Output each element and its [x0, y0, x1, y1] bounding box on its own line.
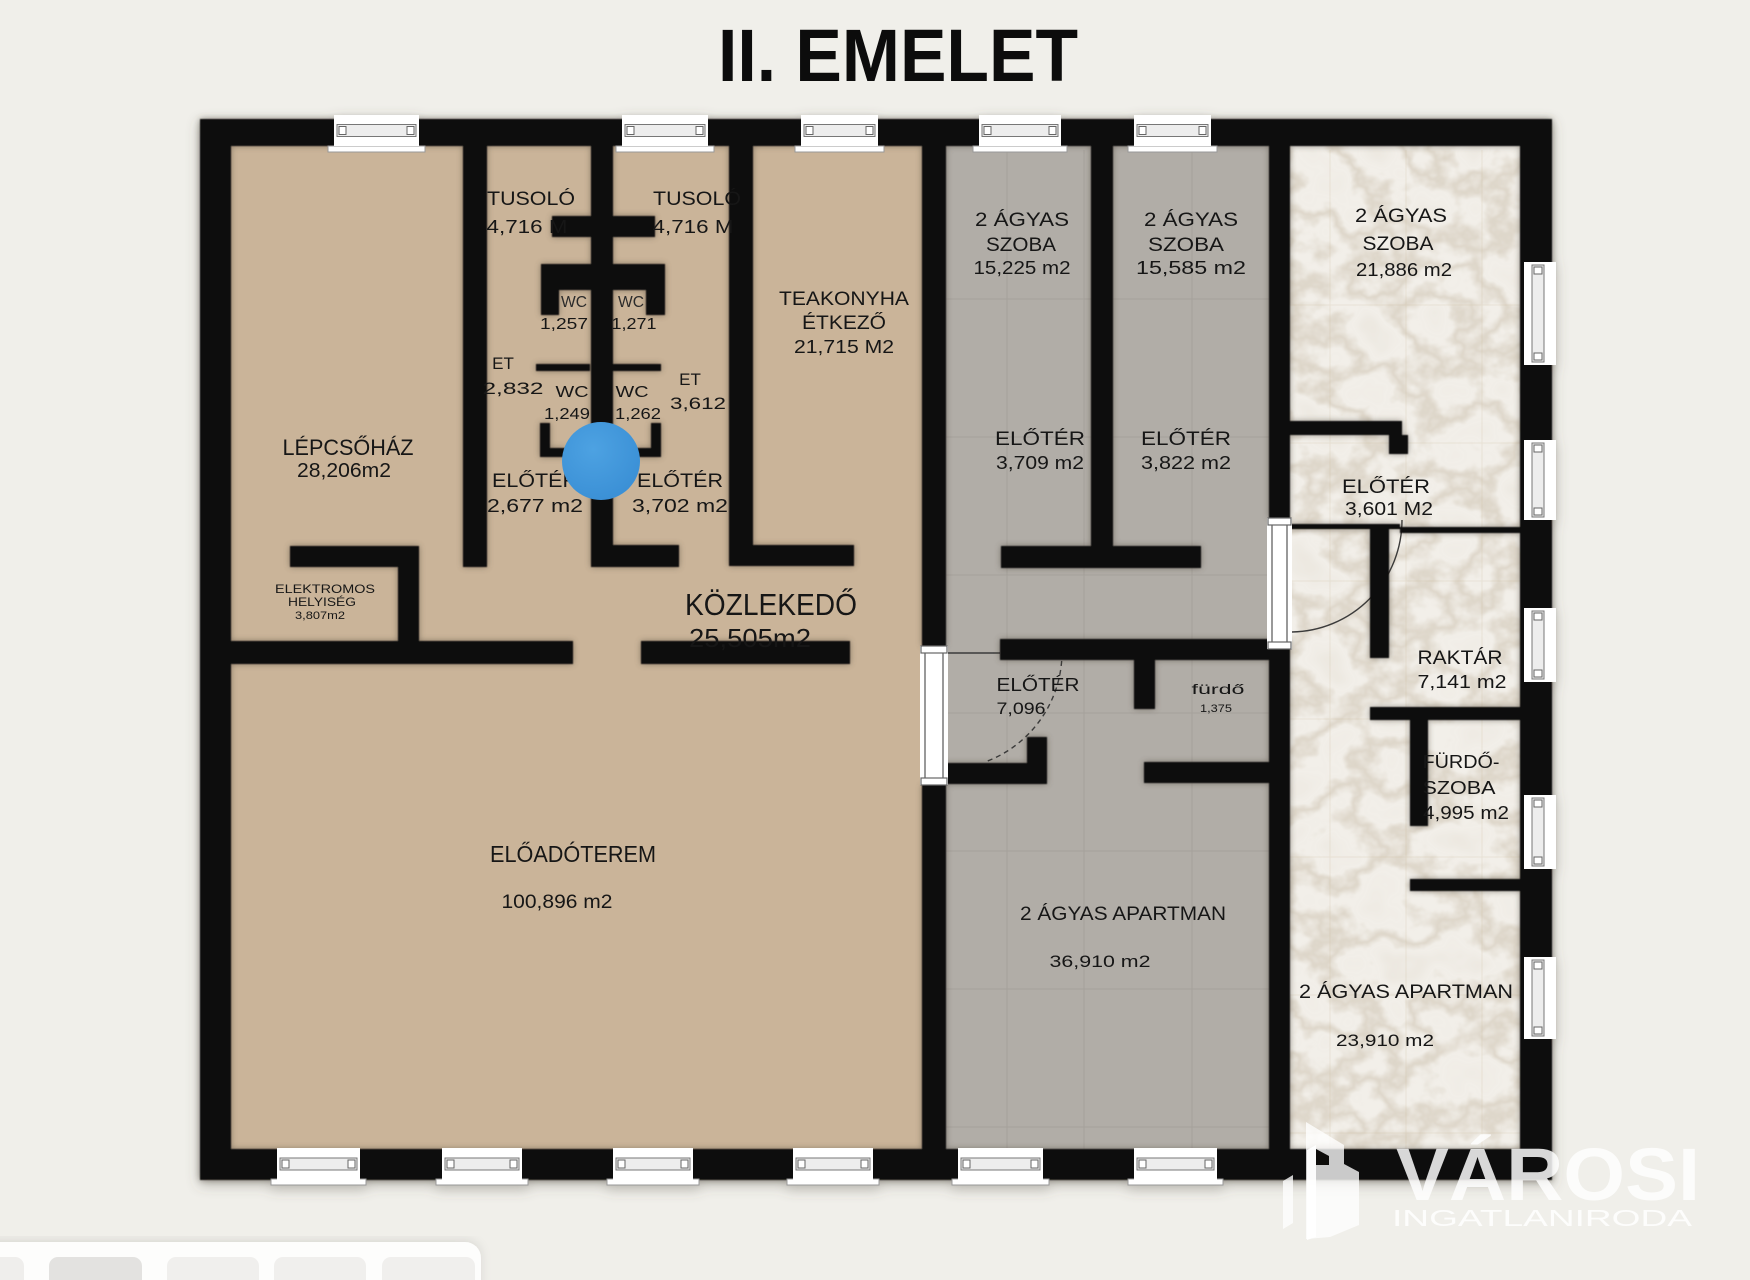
svg-text:2,832: 2,832 [483, 379, 544, 398]
svg-text:3,601 M2: 3,601 M2 [1345, 499, 1433, 519]
svg-text:II. EMELET: II. EMELET [718, 14, 1078, 97]
svg-text:2 ÁGYAS: 2 ÁGYAS [975, 210, 1069, 231]
svg-text:KÖZLEKEDŐ: KÖZLEKEDŐ [685, 587, 857, 622]
svg-text:SZOBA: SZOBA [1423, 778, 1496, 798]
svg-text:100,896 m2: 100,896 m2 [502, 892, 613, 913]
svg-text:RAKTÁR: RAKTÁR [1418, 648, 1503, 669]
svg-text:WC: WC [556, 384, 589, 401]
svg-text:ELŐTÉR: ELŐTÉR [1141, 428, 1231, 450]
svg-text:LÉPCSŐHÁZ: LÉPCSŐHÁZ [283, 435, 414, 460]
svg-text:36,910 m2: 36,910 m2 [1050, 952, 1151, 971]
svg-text:4,995 m2: 4,995 m2 [1423, 803, 1509, 823]
svg-text:4,716 M: 4,716 M [487, 217, 568, 237]
svg-text:TEAKONYHA: TEAKONYHA [779, 289, 909, 310]
svg-text:25,505m2: 25,505m2 [689, 623, 811, 653]
svg-text:TUSOLÓ: TUSOLÓ [487, 188, 575, 210]
svg-text:4,716 M: 4,716 M [653, 217, 734, 237]
svg-text:1,257: 1,257 [540, 316, 588, 333]
svg-text:ELŐTÉR: ELŐTÉR [1342, 476, 1430, 498]
svg-text:1,262: 1,262 [615, 406, 661, 423]
svg-text:23,910 m2: 23,910 m2 [1336, 1031, 1434, 1050]
svg-text:3,709 m2: 3,709 m2 [996, 453, 1084, 473]
svg-text:ÉTKEZŐ: ÉTKEZŐ [802, 312, 886, 334]
svg-text:ELŐTÉR: ELŐTÉR [637, 470, 723, 492]
svg-text:3,822 m2: 3,822 m2 [1141, 453, 1231, 473]
svg-text:1,375: 1,375 [1200, 703, 1232, 715]
svg-text:WC: WC [618, 294, 644, 311]
svg-text:28,206m2: 28,206m2 [297, 460, 391, 482]
svg-text:SZOBA: SZOBA [1363, 234, 1434, 255]
svg-text:HELYISÉG: HELYISÉG [288, 594, 356, 609]
svg-text:INGATLANIRODA: INGATLANIRODA [1392, 1205, 1693, 1231]
svg-text:WC: WC [561, 294, 587, 311]
svg-text:ET: ET [492, 354, 514, 373]
svg-text:2,677 m2: 2,677 m2 [487, 496, 583, 516]
svg-text:SZOBA: SZOBA [986, 235, 1056, 256]
svg-text:ET: ET [679, 370, 701, 389]
svg-text:fürdő: fürdő [1192, 681, 1245, 697]
svg-text:2 ÁGYAS APARTMAN: 2 ÁGYAS APARTMAN [1020, 904, 1226, 925]
svg-text:1,271: 1,271 [612, 316, 657, 333]
svg-text:ELŐTÉR: ELŐTÉR [997, 674, 1080, 695]
svg-text:ELŐADÓTEREM: ELŐADÓTEREM [490, 841, 656, 867]
svg-text:WC: WC [616, 384, 649, 401]
svg-text:3,807m2: 3,807m2 [295, 610, 345, 622]
svg-text:ELEKTROMOS: ELEKTROMOS [275, 582, 375, 596]
svg-text:2 ÁGYAS: 2 ÁGYAS [1144, 210, 1238, 231]
svg-text:VÁROSI: VÁROSI [1396, 1133, 1700, 1216]
svg-text:21,886 m2: 21,886 m2 [1356, 260, 1452, 280]
svg-text:21,715 M2: 21,715 M2 [794, 337, 894, 357]
svg-text:2 ÁGYAS APARTMAN: 2 ÁGYAS APARTMAN [1299, 982, 1513, 1003]
svg-text:7,096: 7,096 [997, 699, 1046, 718]
svg-text:7,141 m2: 7,141 m2 [1418, 672, 1507, 692]
svg-text:15,225 m2: 15,225 m2 [974, 258, 1071, 278]
svg-text:ELŐTÉR: ELŐTÉR [995, 428, 1085, 450]
svg-text:2 ÁGYAS: 2 ÁGYAS [1355, 206, 1447, 227]
svg-text:1,249: 1,249 [544, 406, 590, 423]
svg-text:15,585 m2: 15,585 m2 [1136, 258, 1246, 278]
svg-text:SZOBA: SZOBA [1148, 235, 1224, 256]
svg-text:FÜRDŐ-: FÜRDŐ- [1423, 751, 1500, 772]
svg-text:3,702 m2: 3,702 m2 [632, 496, 728, 516]
svg-text:3,612: 3,612 [670, 394, 726, 413]
svg-text:TUSOLÓ: TUSOLÓ [653, 188, 741, 210]
